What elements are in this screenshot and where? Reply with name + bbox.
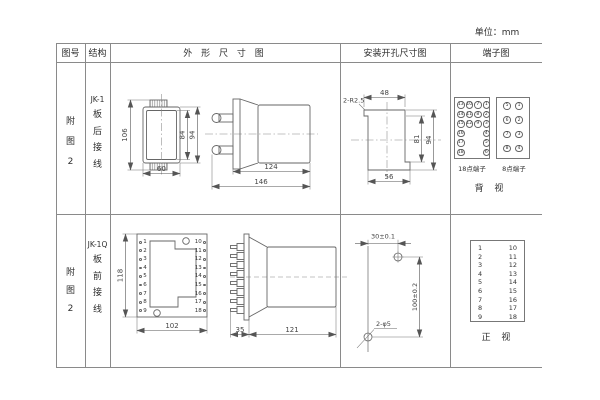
row2-figure-no: 附图2 [56,264,85,318]
dim-label-94-mounting: 94 [425,135,433,144]
unit-label: 单位：mm [452,24,542,39]
terminal-block-top [150,100,167,107]
front-view-terminals-left: 123456789 [139,238,153,315]
row1-figure-no: 附图2 [56,112,85,172]
dim-label-60: 60 [157,165,166,173]
row1-side-view-dimensions: 124 146 [212,155,310,190]
row2-side-view-drawing [230,234,348,320]
row2-mounting-dimensions: 30±0.1 100±0.2 2-φ5 [355,233,423,338]
row2-model-label: JK-1Q [85,240,110,249]
dim-label-56: 56 [385,173,394,181]
dim-label-84: 84 [179,130,187,139]
row1-model-label: JK-1 [85,95,110,104]
dim-label-146: 146 [254,178,268,186]
row2-structure: JK-1Q 板前接线 [85,240,110,318]
dim-label-48: 48 [380,89,389,97]
header-structure: 结构 [85,43,110,62]
dim-label-100: 100±0.2 [411,283,419,311]
row2-mounting-hole-drawing [357,246,404,352]
terminal-block-18pt-label: 18点端子 [450,163,494,173]
header-terminal-diagram: 端子图 [450,43,542,62]
terminal-block-18pt: 131071141182151293164175186 [454,97,490,159]
dim-label-94: 94 [189,130,197,139]
dim-label-121: 121 [285,326,298,334]
dim-label-30: 30±0.1 [371,233,395,241]
row1-front-view-drawing [143,94,180,176]
dim-label-hole: 2-φ5 [376,320,391,328]
terminal-box-18pt-front: 123456789 101112131415161718 [470,240,525,322]
datasheet-page: 106 84 94 60 124 146 [0,0,600,400]
dim-label-corner-radius: 2-R2.5 [343,97,364,105]
terminal-block-8pt-label: 8点端子 [494,163,534,173]
dim-label-106: 106 [121,128,129,142]
row2-side-view-dimensions: 35 121 [231,307,337,338]
terminal-col-left: 123456789 [478,244,482,321]
dim-label-81: 81 [413,135,421,144]
dim-label-102: 102 [165,322,178,330]
row1-side-view-drawing [205,99,318,169]
row1-structure: JK-1 板后接线 [85,95,110,173]
terminal-block-8pt: 51627384 [496,97,530,159]
header-figure-no: 图号 [56,43,85,62]
mounting-hole-top [183,238,190,245]
front-view-terminals-right: 101112131415161718 [190,238,206,315]
dim-label-35: 35 [236,326,245,334]
dim-label-118: 118 [117,269,125,282]
terminal-screw-stack [231,244,245,314]
row1-view-label: 背 视 [460,181,522,193]
row1-wiring-label: 板后接线 [85,107,110,173]
terminal-col-right: 101112131415161718 [509,244,517,321]
row1-front-view-dimensions: 106 84 94 60 [121,100,201,177]
row2-wiring-label: 板前接线 [85,252,110,318]
header-outline-dims: 外 形 尺 寸 图 [110,43,340,62]
header-mounting-dims: 安装开孔尺寸图 [340,43,450,62]
mounting-hole-bottom [154,310,161,317]
dim-label-124: 124 [264,163,278,171]
row2-view-label: 正 视 [467,330,529,342]
